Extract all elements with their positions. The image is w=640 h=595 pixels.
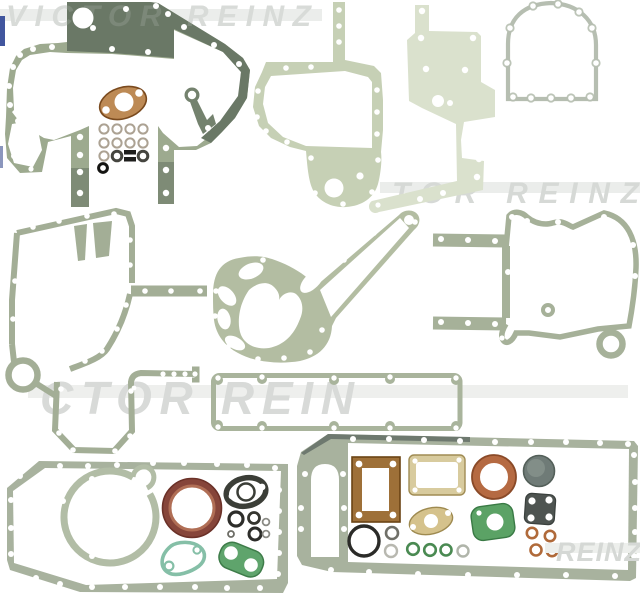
svg-text:REINZ: REINZ (556, 537, 640, 567)
svg-text:VICTOR REINZ: VICTOR REINZ (6, 0, 313, 33)
